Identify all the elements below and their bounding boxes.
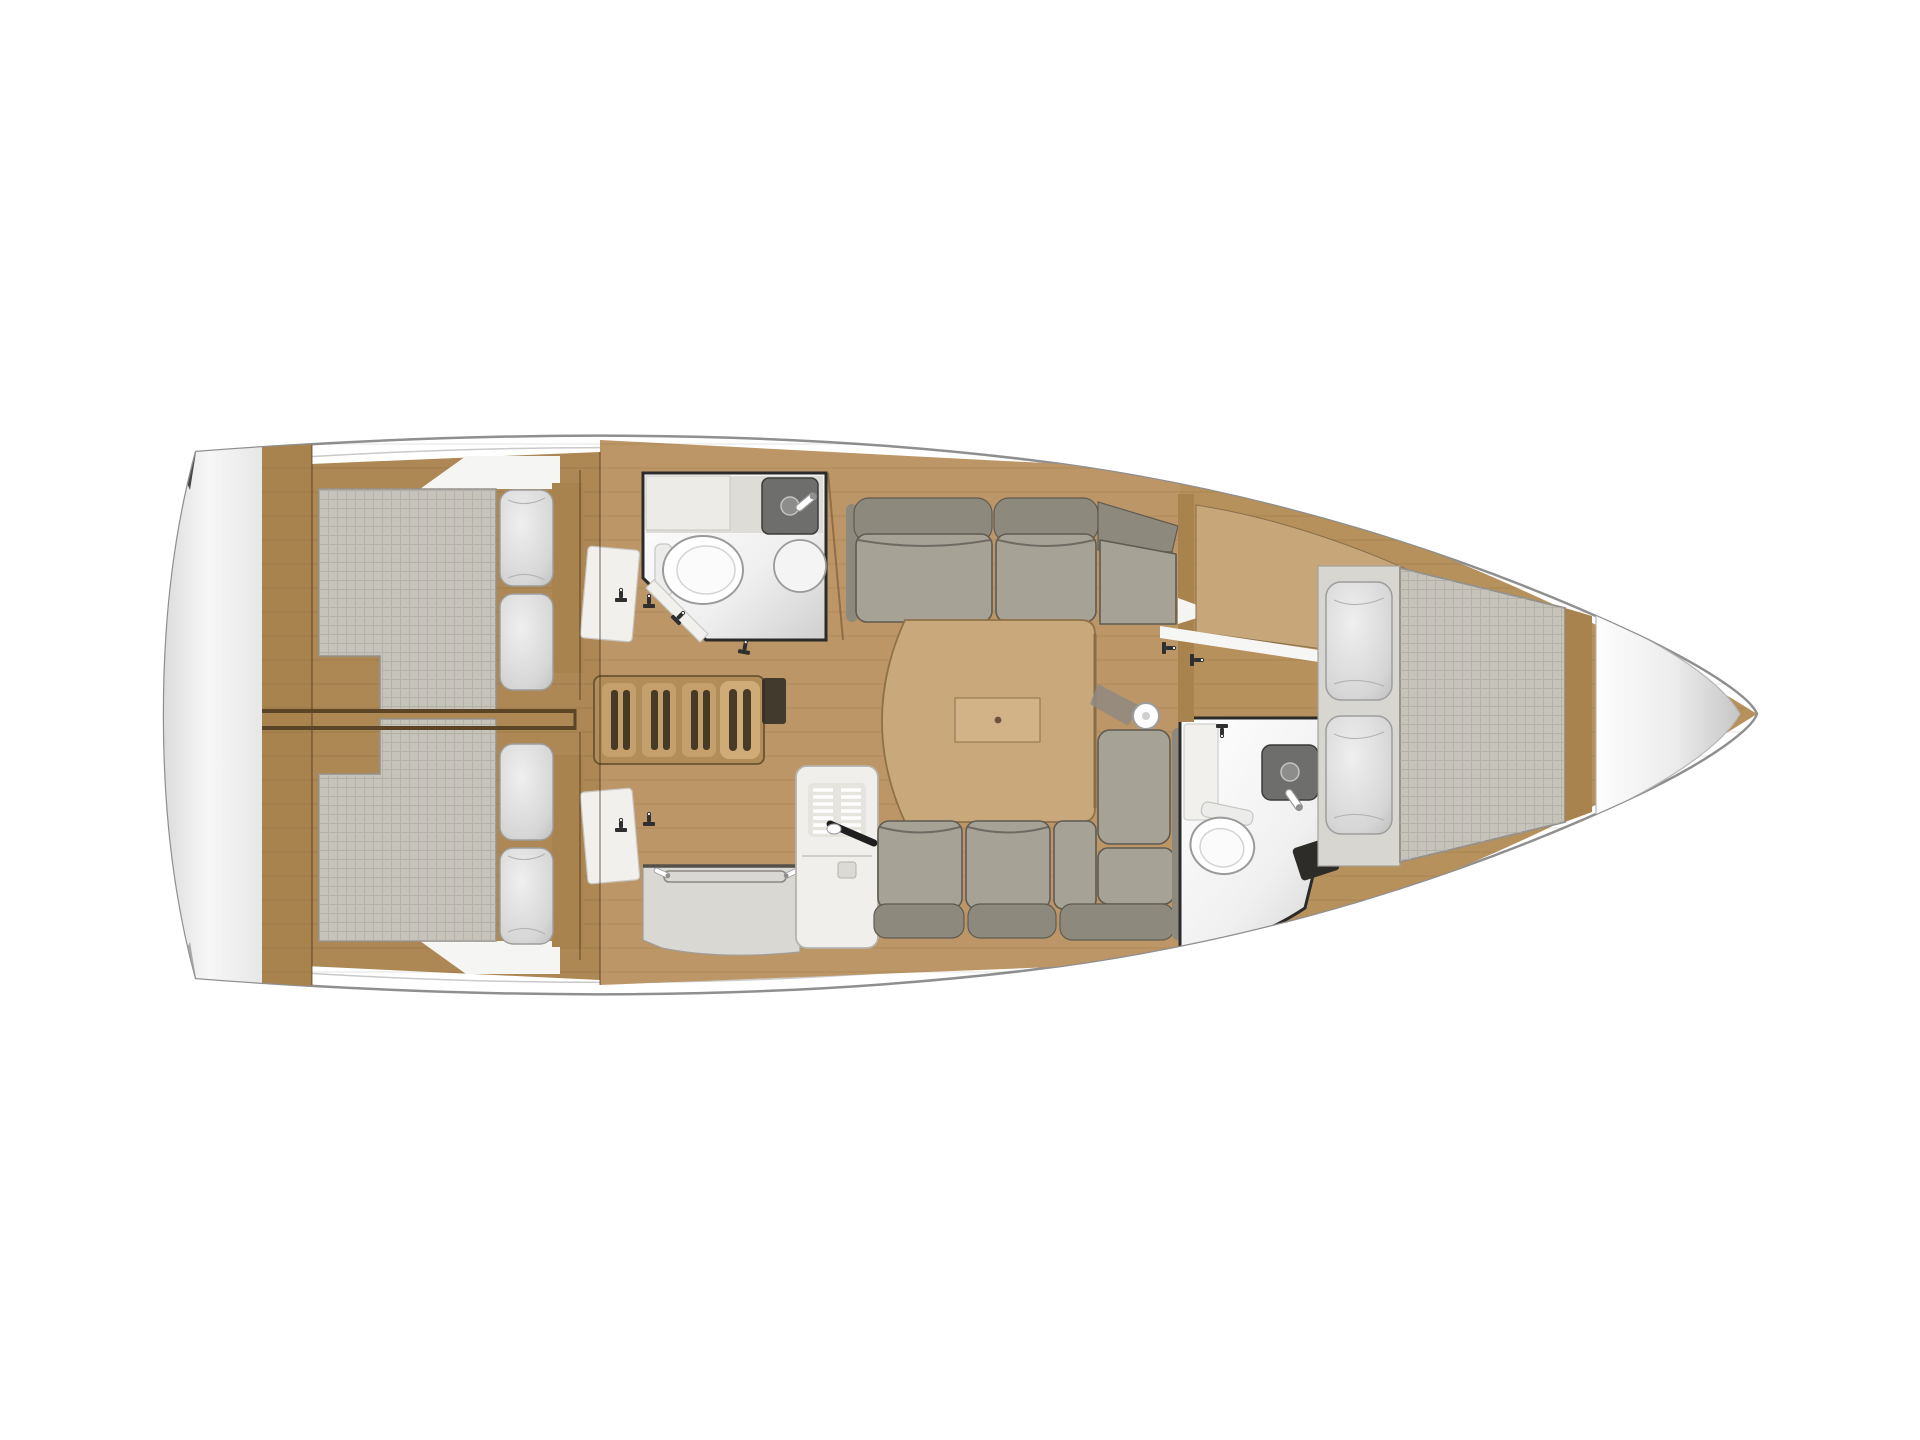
- sofa-seat-cushion: [878, 821, 962, 909]
- locker: [646, 476, 730, 530]
- stair-step: [602, 683, 636, 757]
- sofa-backrest: [874, 904, 964, 938]
- table-pin: [995, 717, 1002, 724]
- step-slot: [743, 689, 751, 751]
- sink-drain-icon: [1281, 763, 1299, 781]
- sofa-corner-cushion: [1098, 848, 1174, 904]
- bow-locker-wedge: [1596, 614, 1740, 816]
- cabin-door: [580, 546, 640, 642]
- pillow: [1326, 582, 1392, 700]
- step-slot: [703, 690, 710, 750]
- sofa-seat-cushion: [856, 534, 992, 622]
- saloon-table: [882, 620, 1095, 822]
- sofa-seat-cushion: [1054, 821, 1096, 909]
- galley-counter: [643, 866, 800, 955]
- vberth-mattress-texture: [1400, 568, 1565, 862]
- shower-drain: [774, 540, 826, 592]
- yacht-floorplan-page: Sailing yacht interior layout plan — top…: [0, 0, 1920, 1440]
- stair-top-platform: [720, 681, 760, 759]
- floorplan-canvas: Sailing yacht interior layout plan — top…: [0, 0, 1920, 1440]
- cabin-door: [580, 788, 640, 884]
- headboard-shelf: [552, 757, 583, 947]
- sofa-seat-cushion: [966, 821, 1050, 909]
- sofa-corner-cushion: [1100, 540, 1176, 624]
- step-slot: [729, 689, 737, 751]
- step-slot: [663, 690, 670, 750]
- handle-knob: [827, 824, 841, 834]
- step-slot: [691, 690, 698, 750]
- stove-unit: [796, 766, 878, 948]
- step-slot: [623, 690, 630, 750]
- stair-step: [642, 683, 676, 757]
- mast-center: [1142, 712, 1150, 720]
- pillow: [500, 594, 553, 690]
- pillow: [500, 848, 553, 944]
- pillow: [500, 490, 553, 586]
- stove-button: [838, 862, 856, 878]
- sofa-return-cushion: [1098, 730, 1170, 844]
- footboard: [1565, 608, 1592, 822]
- stair-step: [682, 683, 716, 757]
- companionway-opening: [762, 678, 786, 724]
- sofa-backrest: [968, 904, 1056, 938]
- step-slot: [611, 690, 618, 750]
- headboard-shelf: [552, 483, 583, 673]
- sofa-backrest: [1060, 904, 1174, 940]
- companionway-stairs: [594, 676, 786, 764]
- salon-sofa-port: [846, 498, 1178, 624]
- sofa-seat-cushion: [996, 534, 1096, 622]
- pillow: [500, 744, 553, 840]
- step-slot: [651, 690, 658, 750]
- pillow: [1326, 716, 1392, 834]
